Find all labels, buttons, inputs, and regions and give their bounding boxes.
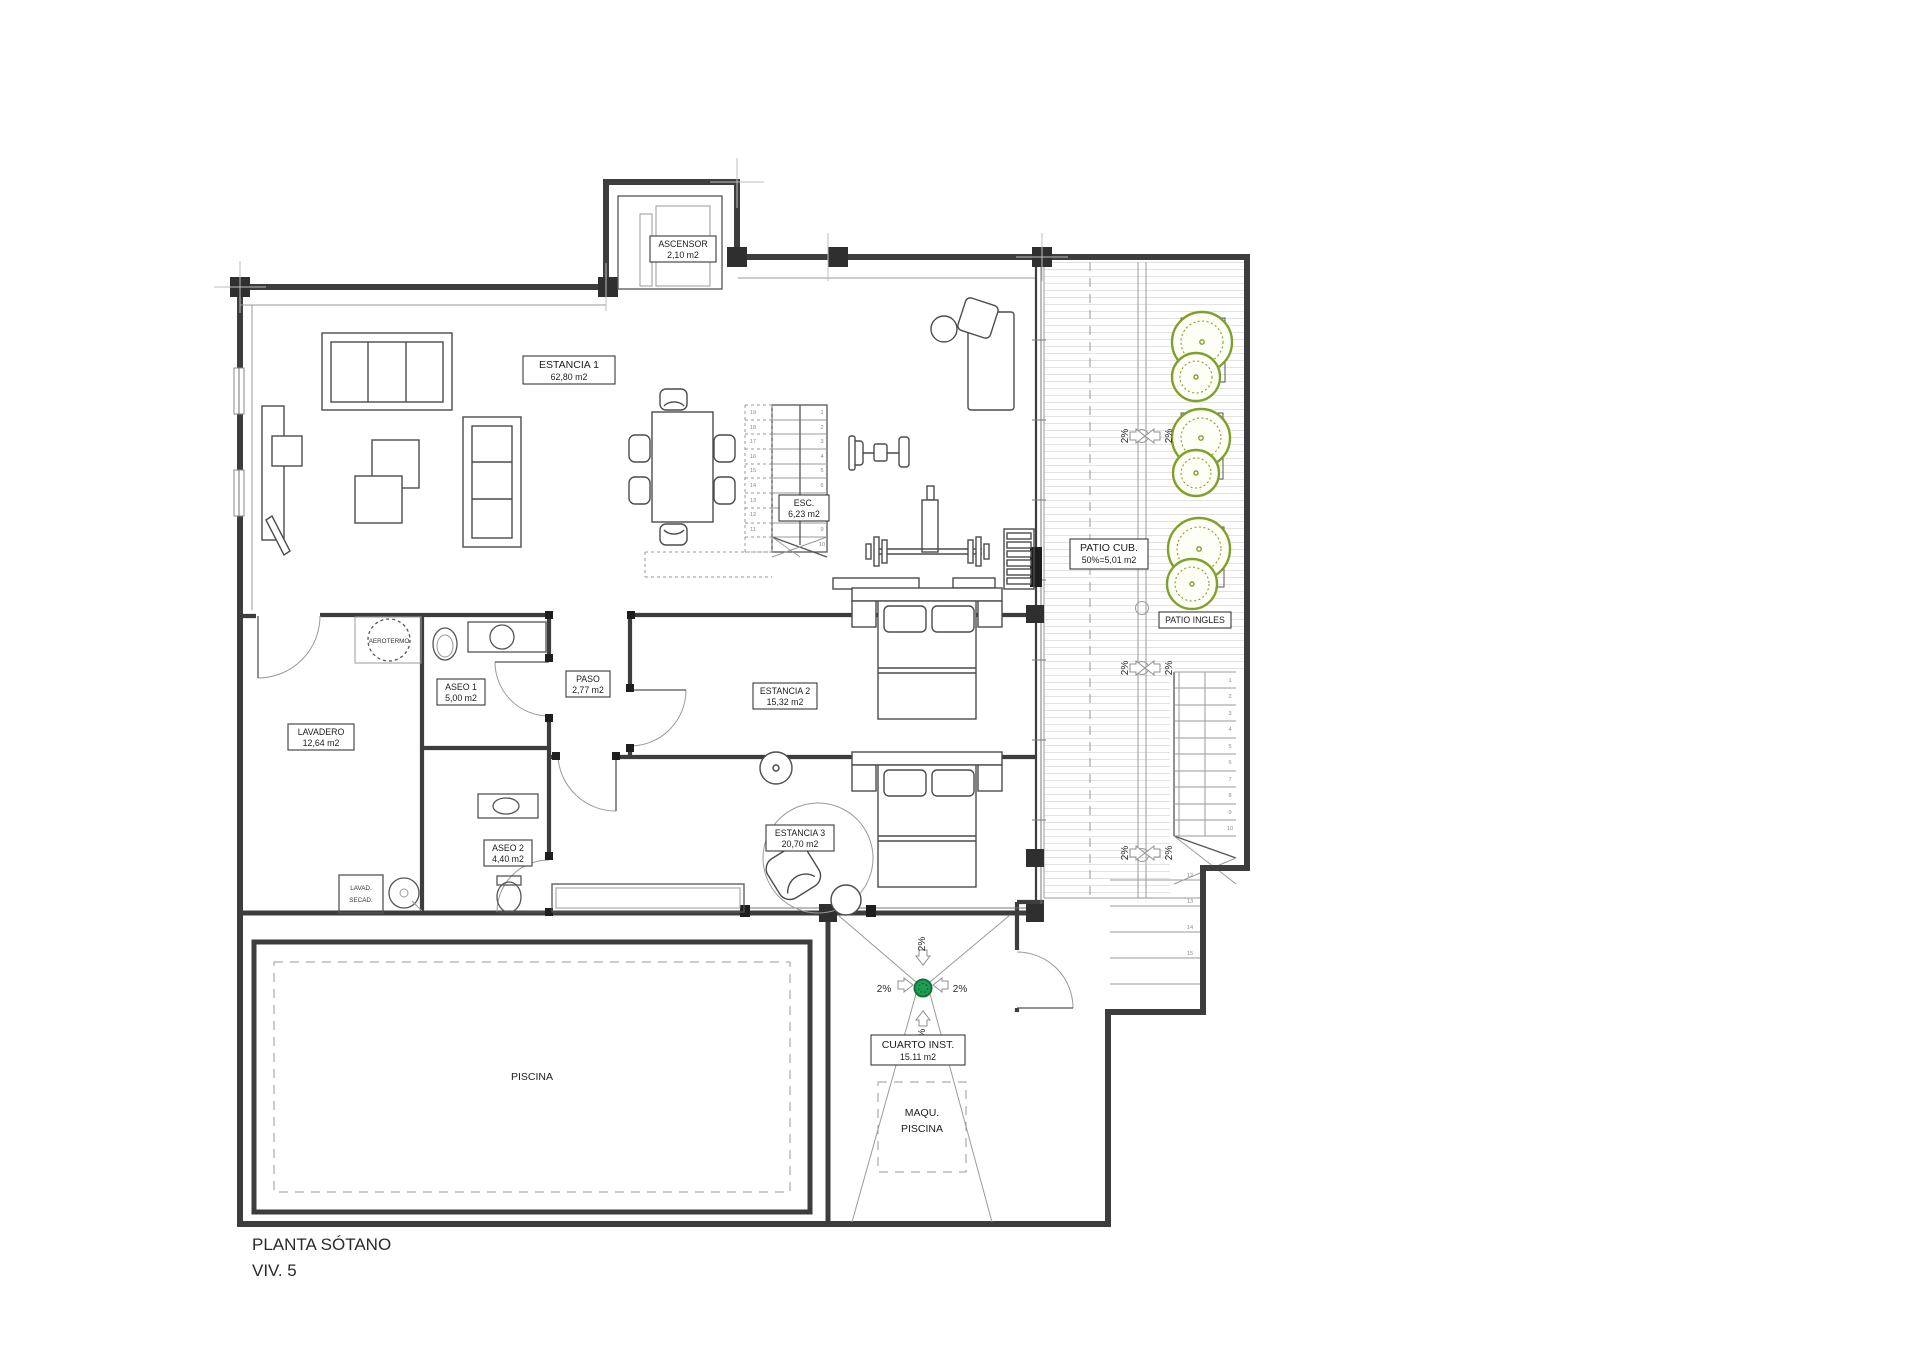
svg-text:14: 14 bbox=[750, 483, 756, 489]
dining-set bbox=[629, 389, 735, 545]
svg-text:LAVAD.: LAVAD. bbox=[350, 885, 372, 892]
slope-arrow-right bbox=[898, 978, 913, 992]
room-label-estancia2: ESTANCIA 2 bbox=[760, 686, 810, 696]
side-table bbox=[760, 752, 792, 784]
svg-text:2,10 m2: 2,10 m2 bbox=[667, 250, 699, 260]
aseo1-fixtures bbox=[433, 622, 546, 660]
svg-text:2%: 2% bbox=[1164, 846, 1175, 861]
room-label-aseo2: ASEO 2 bbox=[492, 843, 524, 853]
svg-text:5: 5 bbox=[1228, 744, 1231, 750]
svg-text:16: 16 bbox=[750, 454, 756, 460]
svg-text:3: 3 bbox=[1228, 711, 1231, 717]
svg-text:4: 4 bbox=[820, 454, 823, 460]
plan-unit: VIV. 5 bbox=[252, 1261, 297, 1280]
svg-text:19: 19 bbox=[750, 410, 756, 416]
weight-bench bbox=[866, 486, 989, 566]
svg-text:6: 6 bbox=[1228, 760, 1231, 766]
room-label-ascensor: ASCENSOR bbox=[658, 239, 707, 249]
room-label-cuarto-inst: CUARTO INST. bbox=[882, 1039, 955, 1051]
exercise-bike bbox=[849, 436, 909, 470]
svg-text:4: 4 bbox=[1228, 727, 1231, 733]
svg-text:10: 10 bbox=[819, 542, 825, 548]
piscina: PISCINA bbox=[254, 942, 810, 1212]
svg-text:2%: 2% bbox=[1164, 429, 1175, 444]
svg-text:5,00 m2: 5,00 m2 bbox=[445, 693, 477, 703]
floor-plan-page: 1 2 3 4 5 6 7 8 9 10 12 13 14 15 bbox=[0, 0, 1920, 1357]
svg-text:62,80 m2: 62,80 m2 bbox=[551, 372, 588, 382]
svg-text:14: 14 bbox=[1187, 925, 1193, 931]
svg-text:2%: 2% bbox=[953, 984, 968, 995]
svg-text:2: 2 bbox=[820, 425, 823, 431]
column bbox=[598, 277, 618, 297]
sink bbox=[490, 625, 514, 649]
coffee-table bbox=[355, 476, 402, 523]
svg-text:2%: 2% bbox=[1120, 846, 1131, 861]
svg-text:6: 6 bbox=[820, 483, 823, 489]
sideboard bbox=[953, 578, 995, 588]
washer-dryer-box bbox=[339, 875, 383, 913]
svg-text:9: 9 bbox=[1228, 810, 1231, 816]
svg-text:8: 8 bbox=[1228, 793, 1231, 799]
room-label-estancia1: ESTANCIA 1 bbox=[539, 359, 599, 371]
slope-label: 2% bbox=[917, 937, 928, 952]
svg-text:3: 3 bbox=[820, 439, 823, 445]
room-label-paso: PASO bbox=[576, 674, 600, 684]
svg-text:2%: 2% bbox=[1164, 661, 1175, 676]
sofa bbox=[463, 417, 521, 547]
floor-plan-canvas: 1 2 3 4 5 6 7 8 9 10 12 13 14 15 bbox=[0, 0, 1920, 1357]
column bbox=[1026, 904, 1044, 922]
svg-text:SECAD.: SECAD. bbox=[349, 897, 373, 904]
svg-text:12: 12 bbox=[750, 512, 756, 518]
gym-equipment bbox=[849, 436, 1034, 589]
slope-arrow-down bbox=[916, 950, 930, 965]
lavadero-fixtures: AEROTERMO LAVAD. SECAD. bbox=[339, 617, 422, 913]
svg-text:13: 13 bbox=[1187, 899, 1193, 905]
bed-estancia2 bbox=[852, 588, 1002, 719]
svg-text:20,70 m2: 20,70 m2 bbox=[782, 839, 819, 849]
svg-text:15: 15 bbox=[750, 468, 756, 474]
svg-text:50%=5,01 m2: 50%=5,01 m2 bbox=[1082, 555, 1137, 565]
svg-text:PISCINA: PISCINA bbox=[901, 1123, 943, 1135]
bed-estancia3 bbox=[852, 752, 1002, 887]
svg-text:4,40 m2: 4,40 m2 bbox=[492, 854, 524, 864]
svg-text:11: 11 bbox=[750, 527, 756, 533]
svg-text:7: 7 bbox=[1228, 777, 1231, 783]
column bbox=[1026, 605, 1044, 623]
aerotermo-label: AEROTERMO bbox=[369, 638, 410, 645]
svg-text:15,32 m2: 15,32 m2 bbox=[767, 697, 804, 707]
svg-text:12,64 m2: 12,64 m2 bbox=[303, 738, 340, 748]
svg-text:2,77 m2: 2,77 m2 bbox=[572, 685, 604, 695]
svg-text:10: 10 bbox=[1227, 826, 1233, 832]
stair-number: 1 bbox=[1228, 678, 1231, 684]
column bbox=[727, 247, 747, 267]
svg-text:18: 18 bbox=[750, 425, 756, 431]
svg-text:15: 15 bbox=[1187, 951, 1193, 957]
column bbox=[828, 247, 848, 267]
svg-text:9: 9 bbox=[820, 527, 823, 533]
svg-text:17: 17 bbox=[750, 439, 756, 445]
tv-unit bbox=[262, 406, 302, 555]
svg-text:6,23 m2: 6,23 m2 bbox=[788, 509, 820, 519]
svg-text:2%: 2% bbox=[1120, 661, 1131, 676]
svg-text:2: 2 bbox=[1228, 694, 1231, 700]
dumbbell-rack bbox=[1004, 529, 1034, 589]
toilet bbox=[497, 882, 521, 912]
slope-arrow-up bbox=[916, 1011, 930, 1026]
svg-text:15.11 m2: 15.11 m2 bbox=[900, 1052, 936, 1062]
title-block: PLANTA SÓTANO VIV. 5 bbox=[252, 1235, 391, 1280]
svg-text:MAQU.: MAQU. bbox=[905, 1107, 939, 1119]
floor-drain bbox=[915, 980, 932, 997]
cuarto-inst: 2% 2% 2% 2% CUARTO INST. 15.11 m2 MAQU. … bbox=[838, 915, 1010, 1222]
hall-wardrobe bbox=[552, 884, 744, 912]
svg-text:13: 13 bbox=[750, 498, 756, 504]
room-label-estancia3: ESTANCIA 3 bbox=[775, 828, 825, 838]
footstool bbox=[831, 885, 861, 915]
svg-text:1: 1 bbox=[820, 410, 823, 416]
toilet bbox=[433, 628, 457, 660]
sofa bbox=[322, 333, 452, 410]
room-label-esc: ESC. bbox=[794, 498, 815, 508]
slope-label: 2% bbox=[1120, 429, 1131, 444]
room-label-patio-ingles: PATIO INGLES bbox=[1165, 615, 1225, 625]
svg-text:5: 5 bbox=[820, 468, 823, 474]
svg-text:2%: 2% bbox=[877, 984, 892, 995]
room-label-aseo1: ASEO 1 bbox=[445, 682, 477, 692]
chaise-lounge bbox=[931, 297, 1014, 410]
sink bbox=[493, 798, 519, 814]
room-label-lavadero: LAVADERO bbox=[298, 727, 345, 737]
plan-title: PLANTA SÓTANO bbox=[252, 1235, 391, 1254]
svg-text:12: 12 bbox=[1187, 873, 1193, 879]
room-label-piscina: PISCINA bbox=[511, 1071, 553, 1083]
slope-arrow-left bbox=[933, 978, 948, 992]
room-label-patio-cub: PATIO CUB. bbox=[1080, 542, 1138, 554]
column bbox=[1026, 849, 1044, 867]
elevator: ASCENSOR 2,10 m2 bbox=[618, 196, 722, 289]
